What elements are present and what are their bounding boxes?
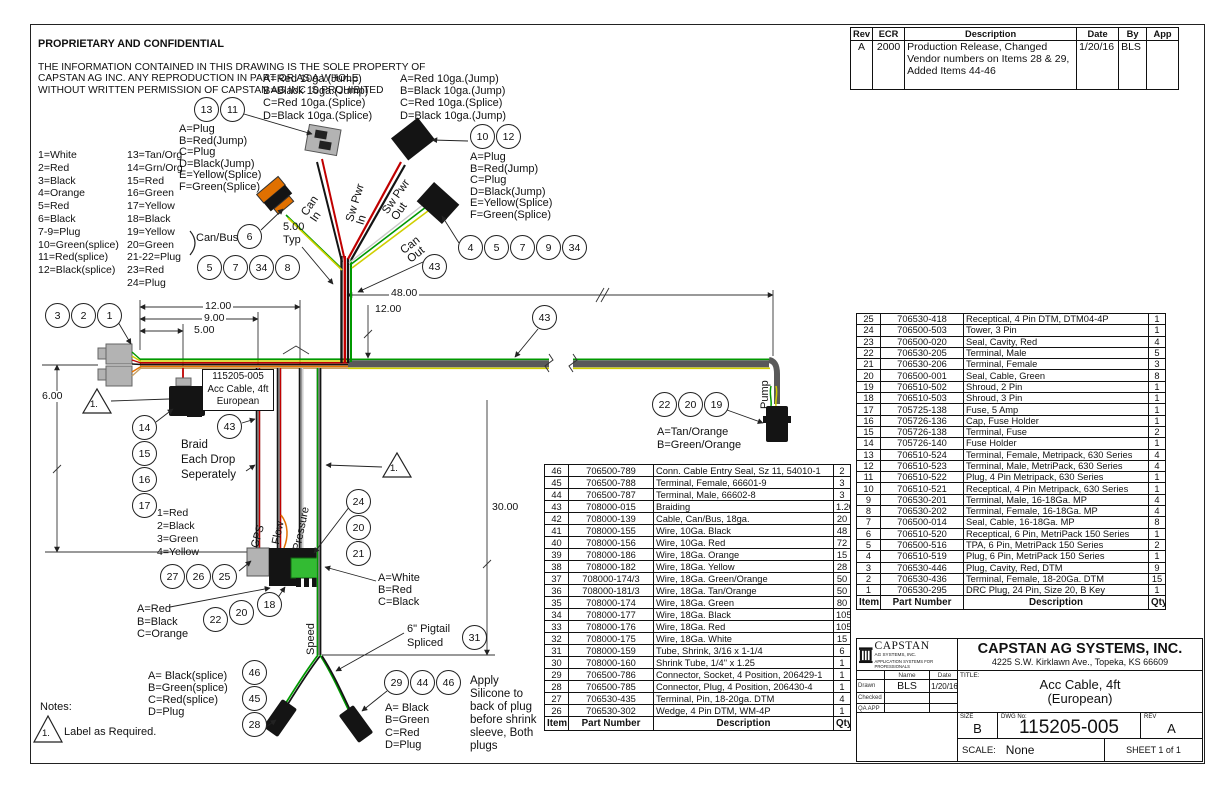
bom-row: 15705726-138Terminal, Fuse2 bbox=[857, 426, 1166, 437]
bom-cell: Terminal, Male, 66602-8 bbox=[654, 489, 834, 501]
dim-12-top: 12.00 bbox=[373, 304, 403, 315]
bom-cell: 14 bbox=[857, 438, 881, 449]
bom-cell: 708000-175 bbox=[569, 633, 654, 645]
company-cell: CAPSTAN AG SYSTEMS, INC. 4225 S.W. Kirkl… bbox=[957, 638, 1203, 671]
bom-row: 13706510-524Terminal, Female, Metripack,… bbox=[857, 449, 1166, 460]
bom-row: 10706510-521Receptical, 4 Pin Metripack,… bbox=[857, 483, 1166, 494]
bom-cell: 708000-186 bbox=[569, 549, 654, 561]
bom-row: 24706500-503Tower, 3 Pin1 bbox=[857, 325, 1166, 336]
rev-date: 1/20/16 bbox=[1077, 41, 1119, 90]
part-label-box: 115205-005 Acc Cable, 4ft European bbox=[202, 369, 274, 411]
bom-cell: 29 bbox=[545, 669, 569, 681]
balloon-5: 5 bbox=[484, 235, 509, 260]
bom-cell: Terminal, Male, MetriPack, 630 Series bbox=[964, 460, 1149, 471]
speed-right-pins-note: A= Black B=Green C=Red D=Plug bbox=[385, 702, 429, 751]
bom-row: 46706500-789Conn. Cable Entry Seal, Sz 1… bbox=[545, 465, 851, 477]
sheet-cell: SHEET 1 of 1 bbox=[1104, 738, 1203, 762]
part-number-header: Part Number bbox=[569, 717, 654, 731]
breakout-bundle bbox=[342, 256, 352, 363]
bom-cell: Wire, 18Ga. Tan/Orange bbox=[654, 585, 834, 597]
balloon-18: 18 bbox=[257, 592, 282, 617]
bom-cell: Cap, Fuse Holder bbox=[964, 415, 1149, 426]
bom-cell: 8 bbox=[1149, 370, 1166, 381]
wire-legend-col1: 1=White 2=Red 3=Black 4=Orange 5=Red 6=B… bbox=[38, 149, 119, 277]
balloon-26: 26 bbox=[186, 564, 211, 589]
bom-cell: 72 bbox=[834, 537, 851, 549]
bom-row: 22706530-205Terminal, Male5 bbox=[857, 347, 1166, 358]
bom-cell: Wire, 18Ga. Green/Orange bbox=[654, 573, 834, 585]
bom-cell: 43 bbox=[545, 501, 569, 513]
qty-header: Qty bbox=[834, 717, 851, 731]
pump-connector bbox=[763, 406, 791, 442]
ecr-value: 2000 bbox=[873, 41, 905, 90]
bom-cell: Wire, 10Ga. Black bbox=[654, 525, 834, 537]
item-header: Item bbox=[545, 717, 569, 731]
balloon-16: 16 bbox=[132, 467, 157, 492]
bom-cell: 105 bbox=[834, 621, 851, 633]
logo-sub: AG SYSTEMS, INC. bbox=[875, 652, 955, 657]
balloon-27: 27 bbox=[160, 564, 185, 589]
sw-pwr-in-connector bbox=[305, 124, 341, 155]
bom-row: 45706500-788Terminal, Female, 66601-93 bbox=[545, 477, 851, 489]
bom-row: 35708000-174Wire, 18Ga. Green80 bbox=[545, 597, 851, 609]
bom-cell: 45 bbox=[545, 477, 569, 489]
ecr-header: ECR bbox=[873, 28, 905, 41]
balloon-22: 22 bbox=[203, 607, 228, 632]
bom-row: 1706530-295DRC Plug, 24 Pin, Size 20, B … bbox=[857, 585, 1166, 596]
balloon-24: 24 bbox=[346, 489, 371, 514]
bom-cell: Wire, 18Ga. Black bbox=[654, 609, 834, 621]
bom-row: 34708000-177Wire, 18Ga. Black105 bbox=[545, 609, 851, 621]
bom-cell: 706500-786 bbox=[569, 669, 654, 681]
bom-cell: Receptical, 4 Pin Metripack, 630 Series bbox=[964, 483, 1149, 494]
bom-cell: 8 bbox=[857, 506, 881, 517]
bom-cell: 708000-155 bbox=[569, 525, 654, 537]
flag-2-number: 1. bbox=[390, 463, 398, 474]
bom-row: 39708000-186Wire, 18Ga. Orange15 bbox=[545, 549, 851, 561]
gps-pins-note: 1=Red 2=Black 3=Green 4=Yellow bbox=[157, 507, 199, 559]
balloon-34: 34 bbox=[562, 235, 587, 260]
bom-cell: 28 bbox=[545, 681, 569, 693]
braid-note: Braid Each Drop Seperately bbox=[181, 438, 236, 483]
bom-row: 3706530-446Plug, Cavity, Red, DTM9 bbox=[857, 562, 1166, 573]
bom-cell: Terminal, Male bbox=[964, 347, 1149, 358]
bom-cell: 10 bbox=[857, 483, 881, 494]
rev-app bbox=[1147, 41, 1179, 90]
balloon-6: 6 bbox=[237, 224, 262, 249]
wire-legend-col2: 13=Tan/Org 14=Grn/Org 15=Red 16=Green 17… bbox=[127, 149, 183, 290]
balloon-20: 20 bbox=[346, 515, 371, 540]
bom-row: 20706500-001Seal, Cable, Green8 bbox=[857, 370, 1166, 381]
balloon-17: 17 bbox=[132, 493, 157, 518]
bom-cell: 1 bbox=[1149, 528, 1166, 539]
bom-cell: Terminal, Female, 16-18Ga. MP bbox=[964, 506, 1149, 517]
bom-row: 37708000-174/3Wire, 18Ga. Green/Orange50 bbox=[545, 573, 851, 585]
balloon-31: 31 bbox=[462, 625, 487, 650]
bom-cell: 15 bbox=[834, 549, 851, 561]
dim-6: 6.00 bbox=[40, 391, 64, 402]
balloon-13: 13 bbox=[194, 97, 219, 122]
bom-cell: Seal, Cable, Green bbox=[964, 370, 1149, 381]
dim-12: 12.00 bbox=[203, 301, 233, 312]
bom-cell: 706530-418 bbox=[881, 314, 964, 325]
bom-cell: 708000-160 bbox=[569, 657, 654, 669]
bom-cell: 706530-206 bbox=[881, 359, 964, 370]
bom-row: 43708000-015Braiding1.20 bbox=[545, 501, 851, 513]
bom-cell: 706510-520 bbox=[881, 528, 964, 539]
bom-cell: 7 bbox=[857, 517, 881, 528]
bom-cell: 708000-176 bbox=[569, 621, 654, 633]
bom-row: 27706530-435Terminal, Pin, 18-20ga. DTM4 bbox=[545, 693, 851, 705]
bom-cell: 8 bbox=[1149, 517, 1166, 528]
bom-table-left: 46706500-789Conn. Cable Entry Seal, Sz 1… bbox=[544, 464, 851, 731]
notes-flag-number: 1. bbox=[42, 728, 50, 739]
bom-row: 18706510-503Shroud, 3 Pin1 bbox=[857, 393, 1166, 404]
bom-cell: 706530-446 bbox=[881, 562, 964, 573]
silicone-note: Apply Silicone to back of plug before sh… bbox=[470, 675, 536, 753]
bom-cell: 12 bbox=[857, 460, 881, 471]
balloon-2: 2 bbox=[71, 303, 96, 328]
balloon-column-14-17: 14151617 bbox=[132, 415, 157, 518]
balloon-15: 15 bbox=[132, 441, 157, 466]
bom-right-header-row: Item Part Number Description Qty bbox=[857, 596, 1166, 610]
by-header: By bbox=[1119, 28, 1147, 41]
revision-table: Rev ECR Description Date By App A 2000 P… bbox=[850, 27, 1179, 90]
bom-cell: 2 bbox=[834, 465, 851, 477]
bom-cell: Connector, Plug, 4 Position, 206430-4 bbox=[654, 681, 834, 693]
balloon-19: 19 bbox=[704, 392, 729, 417]
pressure-pins-note: A=White B=Red C=Black bbox=[378, 572, 420, 608]
bom-cell: 32 bbox=[545, 633, 569, 645]
drawing-sheet: PROPRIETARY AND CONFIDENTIAL THE INFORMA… bbox=[0, 0, 1224, 792]
balloon-column-24-20-21: 242021 bbox=[346, 489, 371, 566]
bom-cell: Wire, 10Ga. Red bbox=[654, 537, 834, 549]
bom-cell: Tube, Shrink, 3/16 x 1-1/4 bbox=[654, 645, 834, 657]
bom-cell: 21 bbox=[857, 359, 881, 370]
rev-header: Rev bbox=[851, 28, 873, 41]
bom-cell: 34 bbox=[545, 609, 569, 621]
balloon-21: 21 bbox=[346, 541, 371, 566]
bom-row: 16705726-136Cap, Fuse Holder1 bbox=[857, 415, 1166, 426]
bom-cell: 1 bbox=[1149, 438, 1166, 449]
bom-row: 25706530-418Receptical, 4 Pin DTM, DTM04… bbox=[857, 314, 1166, 325]
bom-cell: Wire, 18Ga. Green bbox=[654, 597, 834, 609]
balloon-3: 3 bbox=[45, 303, 70, 328]
bom-cell: 9 bbox=[857, 494, 881, 505]
balloon-7: 7 bbox=[223, 255, 248, 280]
bom-cell: 2 bbox=[1149, 426, 1166, 437]
bom-cell: 706510-522 bbox=[881, 472, 964, 483]
bom-cell: 5 bbox=[857, 539, 881, 550]
bom-cell: 48 bbox=[834, 525, 851, 537]
bom-cell: 15 bbox=[857, 426, 881, 437]
bom-cell: 13 bbox=[857, 449, 881, 460]
bom-cell: 23 bbox=[857, 336, 881, 347]
bom-row: 17705725-138Fuse, 5 Amp1 bbox=[857, 404, 1166, 415]
capstan-logo-icon bbox=[859, 645, 873, 665]
proprietary-title: PROPRIETARY AND CONFIDENTIAL bbox=[38, 39, 425, 51]
drawn-name: BLS bbox=[885, 680, 930, 693]
bom-cell: Terminal, Fuse bbox=[964, 426, 1149, 437]
bom-cell: 705726-140 bbox=[881, 438, 964, 449]
dwg-no-value: 115205-005 bbox=[998, 717, 1140, 739]
sw-pwr-out-connector bbox=[391, 118, 435, 161]
bom-cell: 708000-156 bbox=[569, 537, 654, 549]
bom-cell: Seal, Cable, 16-18Ga. MP bbox=[964, 517, 1149, 528]
dwg-no-label: DWG No: bbox=[1001, 714, 1027, 720]
bom-cell: Wedge, 4 Pin DTM, WM-4P bbox=[654, 705, 834, 717]
balloon-group-5-7-34-8: 57348 bbox=[197, 255, 300, 280]
speed-label: Speed bbox=[305, 623, 317, 655]
pump-label: Pump bbox=[759, 380, 771, 409]
bom-cell: Terminal, Female bbox=[964, 359, 1149, 370]
bom-cell: Terminal, Pin, 18-20ga. DTM bbox=[654, 693, 834, 705]
bom-cell: Fuse, 5 Amp bbox=[964, 404, 1149, 415]
bom-cell: 33 bbox=[545, 621, 569, 633]
bom-cell: 3 bbox=[857, 562, 881, 573]
bom-cell: 706500-787 bbox=[569, 489, 654, 501]
balloon-20-flow: 20 bbox=[229, 600, 254, 625]
bom-cell: Wire, 18Ga. White bbox=[654, 633, 834, 645]
pump-pins-note: A=Tan/Orange B=Green/Orange bbox=[657, 426, 741, 451]
bom-cell: 42 bbox=[545, 513, 569, 525]
bom-cell: 18 bbox=[857, 393, 881, 404]
bom-cell: 80 bbox=[834, 597, 851, 609]
bom-row: 28706500-785Connector, Plug, 4 Position,… bbox=[545, 681, 851, 693]
logo-name: CAPSTAN bbox=[875, 640, 955, 652]
bom-cell: 27 bbox=[545, 693, 569, 705]
bom-cell: 708000-177 bbox=[569, 609, 654, 621]
bom-cell: 6 bbox=[834, 645, 851, 657]
bom-cell: 40 bbox=[545, 537, 569, 549]
dim-9: 9.00 bbox=[202, 313, 226, 324]
rev-value: A bbox=[851, 41, 873, 90]
scale-value: None bbox=[1006, 743, 1035, 757]
balloon-group-22-20-19: 222019 bbox=[652, 392, 729, 417]
balloon-29: 29 bbox=[384, 670, 409, 695]
bom-cell: 706530-202 bbox=[881, 506, 964, 517]
drc-24pin-connector bbox=[98, 344, 141, 386]
bom-cell: 50 bbox=[834, 573, 851, 585]
flag-1-number: 1. bbox=[90, 399, 98, 410]
bom-cell: 706530-295 bbox=[881, 585, 964, 596]
bom-cell: Plug, Cavity, Red, DTM bbox=[964, 562, 1149, 573]
bom-row: 6706510-520Receptical, 6 Pin, MetriPack … bbox=[857, 528, 1166, 539]
bom-cell: 17 bbox=[857, 404, 881, 415]
bom-row: 21706530-206Terminal, Female3 bbox=[857, 359, 1166, 370]
dim-5: 5.00 bbox=[192, 325, 216, 336]
bom-cell: 1 bbox=[834, 657, 851, 669]
bom-cell: 26 bbox=[545, 705, 569, 717]
rev-cell: REV A bbox=[1140, 712, 1203, 739]
drawn-checked-table: Name Date Drawn BLS 1/20/16 Checked QA A… bbox=[856, 670, 960, 715]
bom-cell: Receptical, 4 Pin DTM, DTM04-4P bbox=[964, 314, 1149, 325]
bom-row: 32708000-175Wire, 18Ga. White15 bbox=[545, 633, 851, 645]
bom-cell: 41 bbox=[545, 525, 569, 537]
bom-cell: 11 bbox=[857, 472, 881, 483]
bom-cell: 706530-302 bbox=[569, 705, 654, 717]
bom-row: 11706510-522Plug, 4 Pin Metripack, 630 S… bbox=[857, 472, 1166, 483]
bom-cell: 37 bbox=[545, 573, 569, 585]
size-label: SIZE bbox=[960, 714, 973, 720]
bom-cell: 19 bbox=[857, 381, 881, 392]
bom-cell: 20 bbox=[834, 513, 851, 525]
bom-cell: 3 bbox=[1149, 359, 1166, 370]
date-header: Date bbox=[1077, 28, 1119, 41]
bom-cell: 4 bbox=[1149, 449, 1166, 460]
bom-row: 36708000-181/3Wire, 18Ga. Tan/Orange50 bbox=[545, 585, 851, 597]
bom-row: 40708000-156Wire, 10Ga. Red72 bbox=[545, 537, 851, 549]
plug-callout-left: A=Plug B=Red(Jump) C=Plug D=Black(Jump) … bbox=[179, 124, 261, 194]
drawn-label: Drawn bbox=[857, 680, 885, 693]
item-header: Item bbox=[857, 596, 881, 610]
name-column-header: Name bbox=[885, 671, 930, 680]
bom-cell: 705726-138 bbox=[881, 426, 964, 437]
balloon-9: 9 bbox=[536, 235, 561, 260]
bom-cell: Wire, 18Ga. Yellow bbox=[654, 561, 834, 573]
balloon-18-flow: 18 bbox=[257, 592, 282, 617]
drawn-date: 1/20/16 bbox=[930, 680, 960, 693]
notes-title: Notes: bbox=[40, 701, 72, 713]
balloon-12: 12 bbox=[496, 124, 521, 149]
bom-cell: 16 bbox=[857, 415, 881, 426]
pigtail-note: 6" Pigtail Spliced bbox=[407, 623, 450, 650]
bom-cell: 1 bbox=[1149, 585, 1166, 596]
balloon-25: 25 bbox=[212, 564, 237, 589]
size-value: B bbox=[958, 721, 997, 736]
balloon-43-top: 43 bbox=[422, 254, 447, 279]
bom-cell: 1 bbox=[1149, 314, 1166, 325]
bom-right-body: 25706530-418Receptical, 4 Pin DTM, DTM04… bbox=[857, 314, 1166, 596]
bom-cell: 4 bbox=[834, 693, 851, 705]
bom-cell: 4 bbox=[1149, 506, 1166, 517]
bom-cell: 1 bbox=[1149, 393, 1166, 404]
plug-callout-right: A=Plug B=Red(Jump) C=Plug D=Black(Jump) … bbox=[470, 152, 552, 222]
bom-cell: 706510-502 bbox=[881, 381, 964, 392]
bom-cell: 706530-201 bbox=[881, 494, 964, 505]
bom-cell: Connector, Socket, 4 Position, 206429-1 bbox=[654, 669, 834, 681]
bom-cell: 706500-785 bbox=[569, 681, 654, 693]
jumper-callout-right: A=Red 10ga.(Jump) B=Black 10ga.(Jump) C=… bbox=[400, 73, 506, 122]
bom-row: 30708000-160Shrink Tube, 1/4" x 1.251 bbox=[545, 657, 851, 669]
bom-cell: 708000-015 bbox=[569, 501, 654, 513]
bom-cell: Cable, Can/Bus, 18ga. bbox=[654, 513, 834, 525]
bom-cell: 706500-516 bbox=[881, 539, 964, 550]
balloon-4: 4 bbox=[458, 235, 483, 260]
bom-cell: 1 bbox=[1149, 551, 1166, 562]
balloon-46: 46 bbox=[436, 670, 461, 695]
canbus-label: Can/Bus bbox=[196, 232, 238, 244]
balloon-43: 43 bbox=[217, 414, 242, 439]
typ-dimension-note: 5.00 Typ bbox=[283, 221, 304, 246]
bom-cell: 36 bbox=[545, 585, 569, 597]
bom-cell: 706510-519 bbox=[881, 551, 964, 562]
balloon-group-4-5-7-9-34: 457934 bbox=[458, 235, 587, 260]
bom-cell: 4 bbox=[1149, 494, 1166, 505]
balloon-group-13-11: 1311 bbox=[194, 97, 245, 122]
bom-left-header-row: Item Part Number Description Qty bbox=[545, 717, 851, 731]
bom-row: 9706530-201Terminal, Male, 16-18Ga. MP4 bbox=[857, 494, 1166, 505]
description-header: Description bbox=[964, 596, 1149, 610]
bom-cell: 1 bbox=[1149, 472, 1166, 483]
qty-header: Qty bbox=[1149, 596, 1166, 610]
bom-cell: Braiding bbox=[654, 501, 834, 513]
bom-cell: Plug, 4 Pin Metripack, 630 Series bbox=[964, 472, 1149, 483]
bom-cell: 706500-020 bbox=[881, 336, 964, 347]
title-label: TITLE: bbox=[960, 672, 980, 679]
bom-cell: Terminal, Male, 16-18Ga. MP bbox=[964, 494, 1149, 505]
balloon-46: 46 bbox=[242, 660, 267, 685]
bom-cell: 1 bbox=[1149, 381, 1166, 392]
scale-cell: SCALE: None bbox=[957, 738, 1105, 762]
bom-cell: Wire, 18Ga. Red bbox=[654, 621, 834, 633]
bom-cell: 2 bbox=[1149, 539, 1166, 550]
balloon-22: 22 bbox=[652, 392, 677, 417]
balloon-group-10-12: 1012 bbox=[470, 124, 521, 149]
bom-cell: 28 bbox=[834, 561, 851, 573]
rev-value: A bbox=[1141, 721, 1202, 736]
bom-cell: 708000-174/3 bbox=[569, 573, 654, 585]
bom-cell: 708000-181/3 bbox=[569, 585, 654, 597]
rev-label: REV bbox=[1144, 714, 1156, 720]
balloon-group-27-26-25: 272625 bbox=[160, 564, 237, 589]
bom-cell: 3 bbox=[834, 489, 851, 501]
bom-cell: Fuse Holder bbox=[964, 438, 1149, 449]
balloon-44: 44 bbox=[410, 670, 435, 695]
title-cell: TITLE: Acc Cable, 4ft (European) bbox=[957, 670, 1203, 713]
bom-cell: 1 bbox=[834, 681, 851, 693]
balloon-20: 20 bbox=[229, 600, 254, 625]
bom-cell: Terminal, Female, Metripack, 630 Series bbox=[964, 449, 1149, 460]
bom-cell: 22 bbox=[857, 347, 881, 358]
balloon-43: 43 bbox=[532, 305, 557, 330]
bom-cell: Receptical, 6 Pin, MetriPack 150 Series bbox=[964, 528, 1149, 539]
bom-cell: 9 bbox=[1149, 562, 1166, 573]
bom-cell: 35 bbox=[545, 597, 569, 609]
bom-row: 31708000-159Tube, Shrink, 3/16 x 1-1/46 bbox=[545, 645, 851, 657]
bom-row: 23706500-020Seal, Cavity, Red4 bbox=[857, 336, 1166, 347]
checked-label: Checked bbox=[857, 693, 885, 704]
bom-cell: 6 bbox=[857, 528, 881, 539]
bom-row: 38708000-182Wire, 18Ga. Yellow28 bbox=[545, 561, 851, 573]
balloon-43: 43 bbox=[422, 254, 447, 279]
rev-by: BLS bbox=[1119, 41, 1147, 90]
bom-row: 42708000-139Cable, Can/Bus, 18ga.20 bbox=[545, 513, 851, 525]
bom-cell: 708000-174 bbox=[569, 597, 654, 609]
bom-cell: 708000-159 bbox=[569, 645, 654, 657]
bom-row: 14705726-140Fuse Holder1 bbox=[857, 438, 1166, 449]
bom-row: 5706500-516TPA, 6 Pin, MetriPack 150 Ser… bbox=[857, 539, 1166, 550]
balloon-group-29-44-46: 294446 bbox=[384, 670, 461, 695]
bom-cell: Conn. Cable Entry Seal, Sz 11, 54010-1 bbox=[654, 465, 834, 477]
bom-cell: Tower, 3 Pin bbox=[964, 325, 1149, 336]
balloon-43-drop: 43 bbox=[217, 414, 242, 439]
bom-row: 41708000-155Wire, 10Ga. Black48 bbox=[545, 525, 851, 537]
company-name: CAPSTAN AG SYSTEMS, INC. bbox=[958, 641, 1202, 657]
bom-row: 19706510-502Shroud, 2 Pin1 bbox=[857, 381, 1166, 392]
bom-row: 7706500-014Seal, Cable, 16-18Ga. MP8 bbox=[857, 517, 1166, 528]
bom-cell: Terminal, Female, 18-20Ga. DTM bbox=[964, 573, 1149, 584]
bom-cell: 2 bbox=[857, 573, 881, 584]
bom-cell: 706510-524 bbox=[881, 449, 964, 460]
size-cell: SIZE B bbox=[957, 712, 998, 739]
balloon-20: 20 bbox=[678, 392, 703, 417]
bom-cell: 706510-503 bbox=[881, 393, 964, 404]
bom-cell: Shroud, 2 Pin bbox=[964, 381, 1149, 392]
balloon-14: 14 bbox=[132, 415, 157, 440]
bom-cell: 706500-789 bbox=[569, 465, 654, 477]
bom-row: 33708000-176Wire, 18Ga. Red105 bbox=[545, 621, 851, 633]
